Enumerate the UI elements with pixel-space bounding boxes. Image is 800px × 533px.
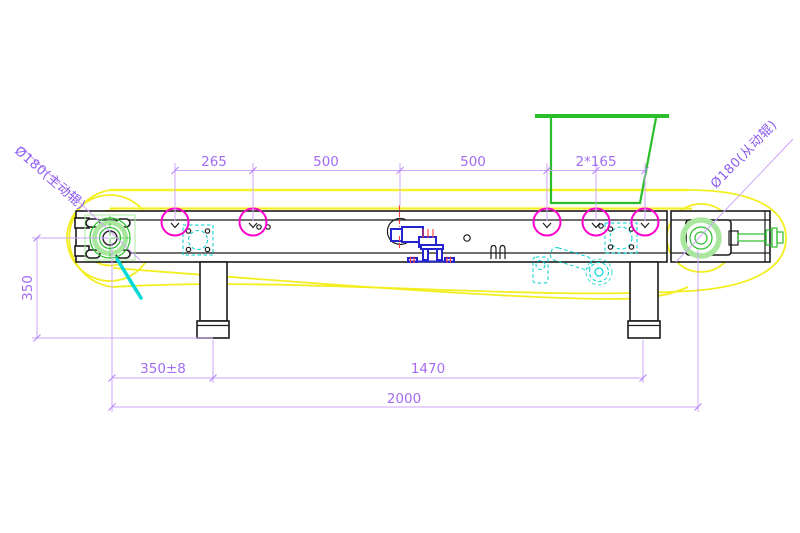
belt-scraper bbox=[117, 259, 141, 298]
dim-2000: 2000 bbox=[387, 391, 421, 407]
dim-1470: 1470 bbox=[411, 361, 445, 377]
left-leg bbox=[197, 262, 229, 338]
dim-350-8: 350±8 bbox=[140, 361, 186, 377]
dim-500-left: 500 bbox=[313, 154, 339, 170]
conveyor-drawing: 265 500 500 2*165 350 350±8 1470 2000 Ø1… bbox=[0, 0, 800, 533]
label-drive-drum: Ø180(主动辊) bbox=[11, 144, 88, 214]
dim-2x165: 2*165 bbox=[575, 154, 616, 170]
cad-canvas: 265 500 500 2*165 350 350±8 1470 2000 Ø1… bbox=[0, 0, 800, 533]
dim-500-right: 500 bbox=[460, 154, 486, 170]
dim-265: 265 bbox=[201, 154, 227, 170]
dim-350: 350 bbox=[20, 275, 36, 301]
label-driven-drum: Ø180(从动辊) bbox=[708, 118, 780, 192]
right-leg bbox=[628, 262, 660, 338]
